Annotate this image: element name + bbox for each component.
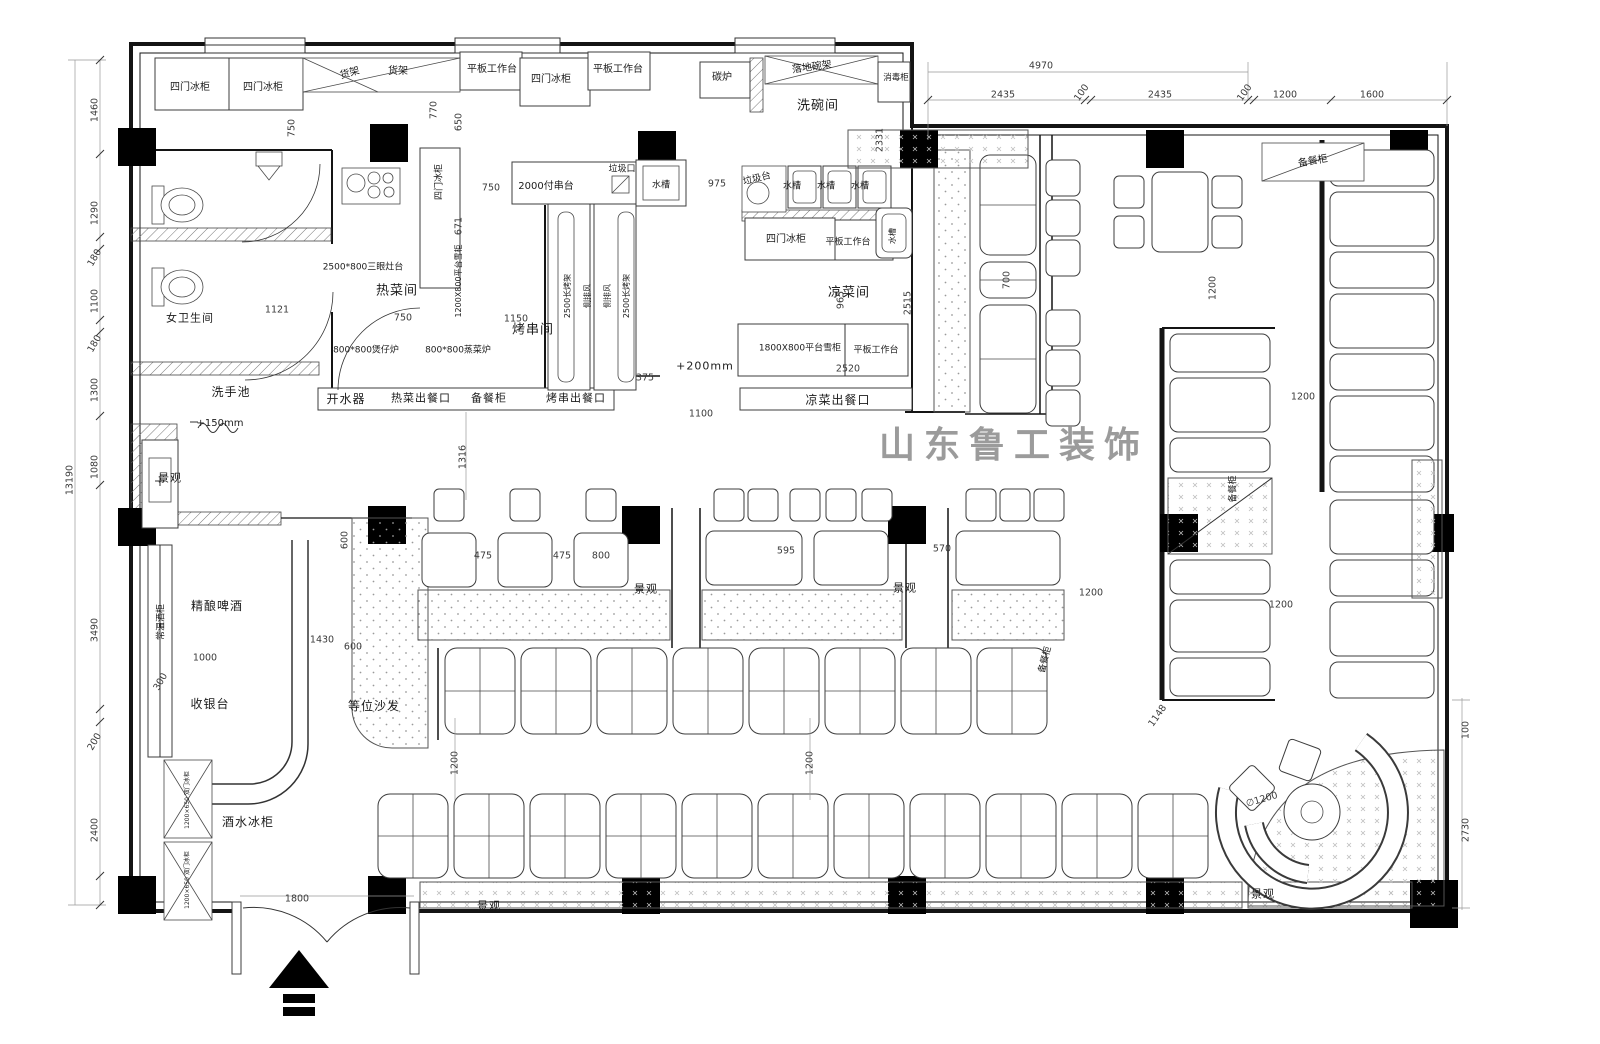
floor-plan: 四门冰柜四门冰柜货架货架平板工作台四门冰柜平板工作台碳炉落地碗架消毒柜洗碗间垃圾…	[0, 0, 1600, 1044]
entrance-arrow-icon	[269, 950, 329, 1016]
restroom-fixtures	[142, 152, 420, 528]
waiting-sofa-shape	[352, 518, 428, 748]
round-sofa	[1226, 738, 1444, 906]
floor-plan-drawing	[0, 0, 1600, 1044]
entrance	[232, 902, 419, 1016]
kitchen-equipment	[155, 52, 912, 390]
bar-counter	[148, 540, 308, 920]
